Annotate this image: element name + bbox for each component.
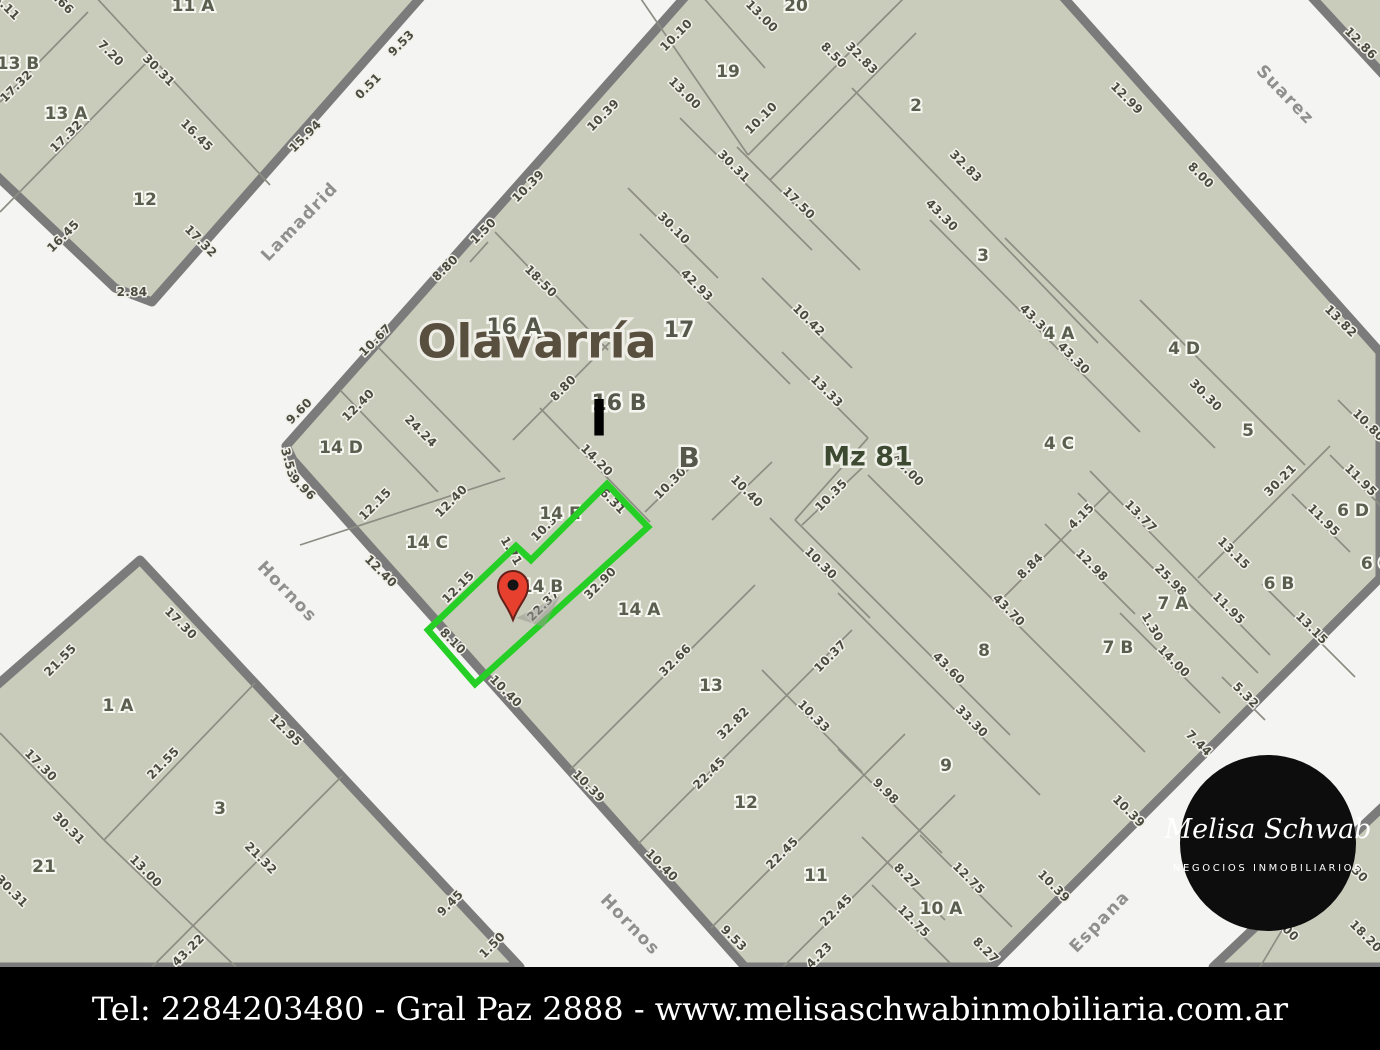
lot-label: 6 D (1337, 501, 1369, 521)
lot-label: 3 (977, 246, 989, 266)
lot-label: 11 (804, 866, 828, 886)
lot-label: 7 B (1103, 638, 1134, 658)
lot-label: 14 D (319, 438, 363, 458)
lot-label: 3 (214, 799, 226, 819)
cadastral-map: 3.111.667.2030.3116.4517.3217.3216.4517.… (0, 0, 1380, 1050)
lot-label: 17 (664, 318, 695, 343)
footer-contact-text: Tel: 2284203480 - Gral Paz 2888 - www.me… (92, 990, 1288, 1028)
lot-label: 10 A (920, 899, 964, 919)
lot-label: 7 A (1158, 594, 1190, 614)
lot-label: 19 (716, 62, 740, 82)
lot-label: 5 (1242, 421, 1254, 441)
lot-label: 11 A (172, 0, 216, 16)
lot-label: 13 A (45, 104, 89, 124)
lot-label: 4 A (1044, 324, 1076, 344)
dimension-label: 2.84 (117, 285, 148, 299)
parcel-b-label: B (678, 441, 699, 474)
lot-label: 20 (784, 0, 808, 16)
lot-label: 12 (133, 190, 157, 210)
logo-name: Melisa Schwab (1164, 814, 1372, 845)
lot-label: 6 C (1361, 554, 1380, 574)
lot-label: 9 (940, 756, 952, 776)
logo-tagline: NEGOCIOS INMOBILIARIOS (1173, 863, 1363, 874)
lot-label: 16 A (486, 315, 541, 340)
map-screenshot: 3.111.667.2030.3116.4517.3217.3216.4517.… (0, 0, 1380, 1050)
footer-bar: Tel: 2284203480 - Gral Paz 2888 - www.me… (0, 967, 1380, 1050)
lot-label: 13 B (0, 54, 39, 74)
lot-label: 6 B (1264, 574, 1295, 594)
lot-label: 4 D (1168, 339, 1200, 359)
lot-label: 14 C (406, 533, 448, 553)
parcel-i-mark: I (590, 390, 609, 448)
lot-label: 13 (699, 676, 723, 696)
lot-label: 2 (910, 96, 922, 116)
lot-label: 21 (32, 857, 56, 877)
lot-label: 4 C (1044, 434, 1074, 454)
lot-label: 1 A (103, 696, 135, 716)
lot-label: 8 (978, 641, 990, 661)
lot-label: 14 A (618, 600, 662, 620)
manzana-label: Mz 81 (823, 442, 913, 473)
lot-label: 12 (734, 793, 758, 813)
